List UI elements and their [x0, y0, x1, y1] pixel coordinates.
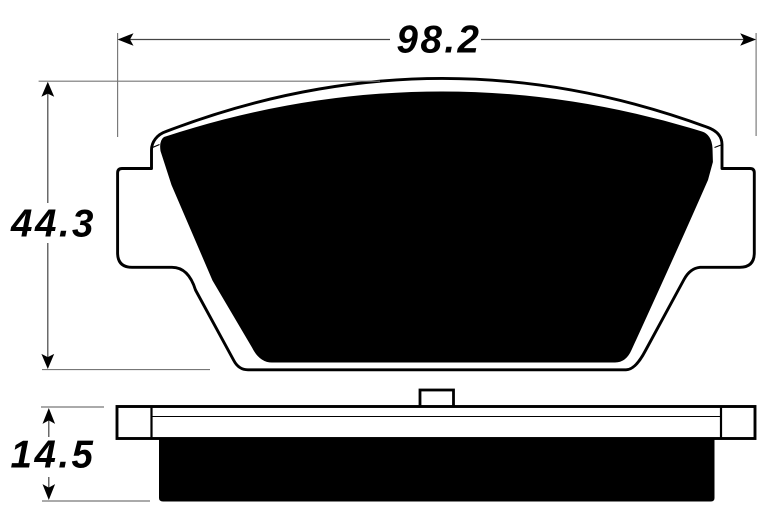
svg-text:44.3: 44.3: [10, 203, 96, 246]
svg-text:14.5: 14.5: [11, 434, 96, 477]
svg-text:98.2: 98.2: [397, 19, 482, 62]
